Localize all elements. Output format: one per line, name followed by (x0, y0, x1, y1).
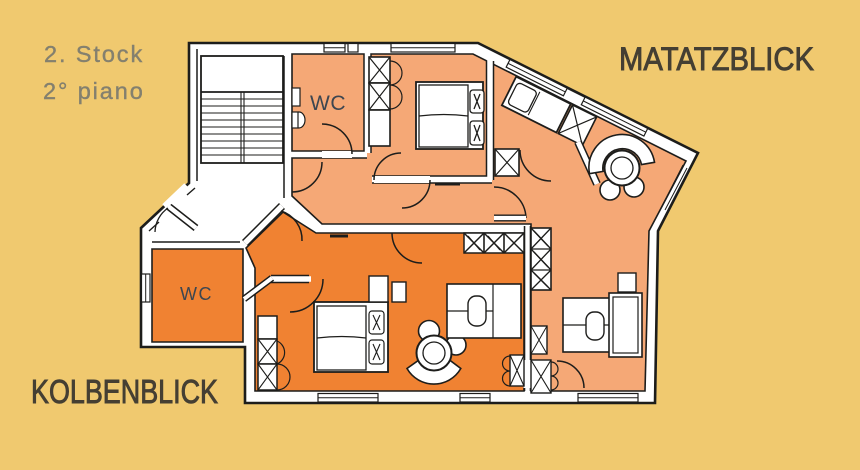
svg-text:MATATZBLICK: MATATZBLICK (619, 41, 814, 77)
svg-text:2° piano: 2° piano (43, 78, 145, 104)
svg-text:WC: WC (310, 92, 346, 115)
svg-text:2. Stock: 2. Stock (44, 41, 144, 67)
svg-text:KOLBENBLICK: KOLBENBLICK (31, 373, 218, 410)
svg-text:WC: WC (180, 284, 213, 304)
